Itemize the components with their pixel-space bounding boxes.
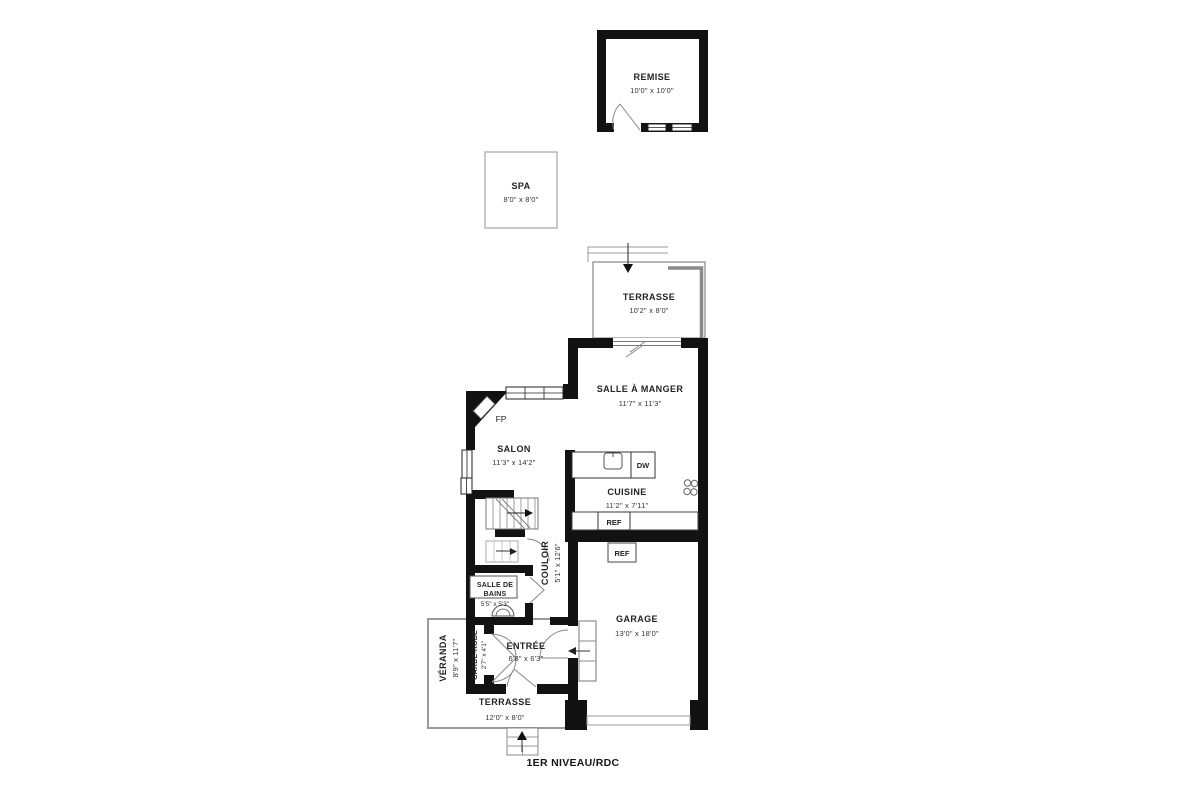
couloir-label: COULOIR bbox=[540, 541, 550, 585]
salle-a-manger-dims: 11'7" x 11'3" bbox=[619, 399, 662, 408]
remise-label: REMISE bbox=[634, 72, 671, 82]
garde-robe-dims: 2'7" x 4'1" bbox=[481, 640, 488, 669]
cuisine-label: CUISINE bbox=[607, 487, 646, 497]
terrasse-top-label: TERRASSE bbox=[623, 292, 675, 302]
fireplace-label: FP bbox=[496, 414, 507, 424]
couloir-dims: 5'1" x 12'6" bbox=[553, 543, 562, 582]
kitchen-counter bbox=[572, 512, 698, 530]
garde-robe-label: GARDE-ROBE bbox=[472, 630, 479, 680]
salon-dims: 11'3" x 14'2" bbox=[492, 458, 535, 467]
salle-de-bains-label2: BAINS bbox=[484, 591, 507, 598]
hall-left-window bbox=[461, 478, 472, 494]
spa-label: SPA bbox=[511, 181, 530, 191]
veranda-dims: 8'9" x 11'7" bbox=[451, 638, 460, 677]
stove-icon bbox=[684, 480, 698, 495]
salon-left-window bbox=[462, 450, 472, 478]
entree-dims: 6'8" x 6'3" bbox=[509, 654, 544, 663]
remise-door-opening bbox=[614, 123, 641, 132]
floor-level-label: 1ER NIVEAU/RDC bbox=[527, 757, 620, 769]
terrasse-top-deck bbox=[588, 243, 705, 338]
salle-de-bains-dims: 5'5" x 5'3" bbox=[481, 601, 510, 608]
floor-plan-drawing: REMISE 10'0" x 10'0" SPA 8'0" x 8'0" TER… bbox=[0, 0, 1200, 799]
dishwasher-label: DW bbox=[637, 461, 650, 470]
terrasse-top-dims: 10'2" x 8'0" bbox=[629, 306, 668, 315]
fridge-kitchen-label: REF bbox=[607, 518, 622, 527]
garage-label: GARAGE bbox=[616, 614, 658, 624]
terrasse-bottom-dims: 12'0" x 8'0" bbox=[485, 713, 524, 722]
terrasse-bottom-label: TERRASSE bbox=[479, 697, 531, 707]
garage-door bbox=[587, 716, 690, 725]
entree-label: ENTRÉE bbox=[507, 641, 546, 651]
salle-de-bains-label1: SALLE DE bbox=[477, 582, 513, 589]
terrasse-steps bbox=[507, 728, 538, 755]
salle-a-manger-label: SALLE À MANGER bbox=[597, 384, 684, 394]
cuisine-dims: 11'2" x 7'11" bbox=[606, 501, 649, 510]
garage-dims: 13'0" x 18'0" bbox=[615, 629, 659, 638]
salon-label: SALON bbox=[497, 444, 531, 454]
fridge-garage-label: REF bbox=[615, 549, 630, 558]
spa-dims: 8'0" x 8'0" bbox=[504, 195, 539, 204]
remise-dims: 10'0" x 10'0" bbox=[630, 86, 674, 95]
salon-top-window bbox=[506, 387, 563, 399]
floor-plan-page: REMISE 10'0" x 10'0" SPA 8'0" x 8'0" TER… bbox=[0, 0, 1200, 799]
veranda-label: VÉRANDA bbox=[438, 634, 448, 681]
